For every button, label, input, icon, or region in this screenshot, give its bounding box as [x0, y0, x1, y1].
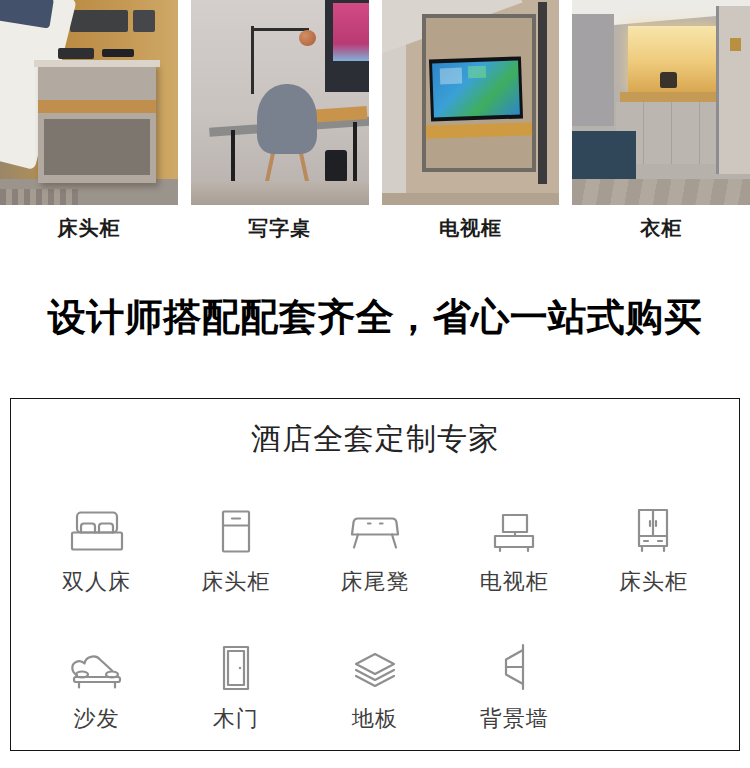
- product-detail-section: 床头柜 写字桌 电视框: [0, 0, 750, 768]
- category-item-bed-end-bench: 床尾凳: [305, 504, 444, 597]
- gallery-item: 床头柜: [0, 0, 178, 242]
- gallery-item: 电视框: [382, 0, 560, 242]
- category-label: 双人床: [62, 567, 131, 597]
- category-label: 背景墙: [480, 704, 549, 734]
- photo-caption: 写字桌: [191, 215, 369, 242]
- panel-title: 酒店全套定制专家: [11, 419, 739, 460]
- category-grid: 双人床 床头柜: [11, 504, 739, 734]
- category-item-nightstand: 床头柜: [166, 504, 305, 597]
- category-item-empty: [584, 641, 723, 734]
- category-item-tv-cabinet: 电视柜: [445, 504, 584, 597]
- nightstand-icon: [220, 504, 252, 554]
- gallery-item: 衣柜: [572, 0, 750, 242]
- category-item-background-wall: 背景墙: [445, 641, 584, 734]
- category-label: 电视柜: [480, 567, 549, 597]
- category-label: 床头柜: [201, 567, 270, 597]
- writing-desk-photo: [191, 0, 369, 205]
- category-item-double-bed: 双人床: [27, 504, 166, 597]
- background-wall-icon: [498, 641, 530, 691]
- category-item-floor: 地板: [305, 641, 444, 734]
- category-label: 床尾凳: [340, 567, 409, 597]
- sofa-icon: [69, 641, 125, 691]
- category-item-wardrobe: 床头柜: [584, 504, 723, 597]
- headline: 设计师搭配配套齐全，省心一站式购买: [0, 292, 750, 343]
- photo-caption: 床头柜: [0, 215, 178, 242]
- tv-frame-photo: [382, 0, 560, 205]
- photo-caption: 电视框: [382, 215, 560, 242]
- category-label: 木门: [213, 704, 259, 734]
- category-label: 沙发: [74, 704, 120, 734]
- tv-cabinet-icon: [491, 504, 537, 554]
- double-bed-icon: [69, 504, 125, 554]
- gallery-item: 写字桌: [191, 0, 369, 242]
- photo-caption: 衣柜: [572, 215, 750, 242]
- product-photo-gallery: 床头柜 写字桌 电视框: [0, 0, 750, 242]
- category-label: 地板: [352, 704, 398, 734]
- category-item-wood-door: 木门: [166, 641, 305, 734]
- wardrobe-photo: [572, 0, 750, 205]
- wardrobe-icon: [636, 504, 670, 554]
- category-item-sofa: 沙发: [27, 641, 166, 734]
- category-label: 床头柜: [619, 567, 688, 597]
- floor-icon: [353, 641, 397, 691]
- wood-door-icon: [221, 641, 251, 691]
- customization-panel: 酒店全套定制专家 双人床: [10, 398, 740, 751]
- bed-end-bench-icon: [347, 504, 403, 554]
- bedside-cabinet-photo: [0, 0, 178, 205]
